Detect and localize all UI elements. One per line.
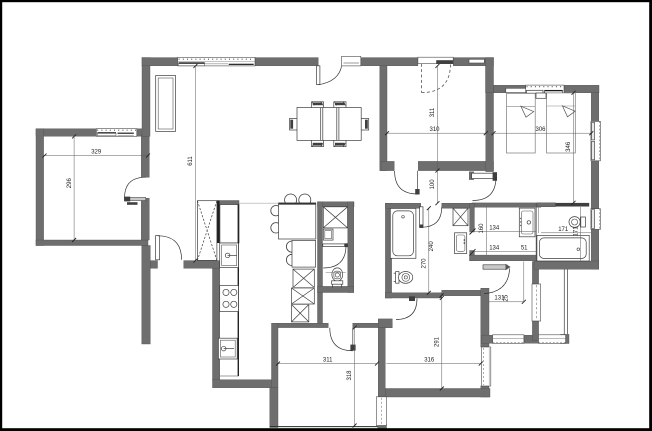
svg-text:160: 160 [479, 223, 485, 234]
svg-text:171: 171 [558, 227, 569, 233]
svg-text:134: 134 [489, 246, 500, 252]
svg-text:134: 134 [489, 226, 500, 232]
svg-text:346: 346 [566, 141, 572, 152]
svg-text:291: 291 [434, 336, 440, 347]
svg-text:311: 311 [430, 107, 436, 117]
svg-text:240: 240 [429, 241, 435, 252]
svg-text:270: 270 [422, 258, 428, 269]
svg-text:51: 51 [521, 245, 528, 251]
svg-text:611: 611 [188, 156, 194, 166]
svg-text:25: 25 [504, 294, 510, 301]
svg-text:306: 306 [535, 127, 546, 133]
svg-text:329: 329 [91, 150, 102, 156]
svg-text:311: 311 [323, 358, 333, 364]
svg-text:171: 171 [574, 226, 580, 237]
svg-text:310: 310 [429, 127, 440, 133]
svg-text:316: 316 [424, 358, 435, 364]
svg-text:100: 100 [430, 179, 436, 190]
svg-text:296: 296 [67, 178, 73, 189]
svg-text:318: 318 [347, 370, 353, 381]
